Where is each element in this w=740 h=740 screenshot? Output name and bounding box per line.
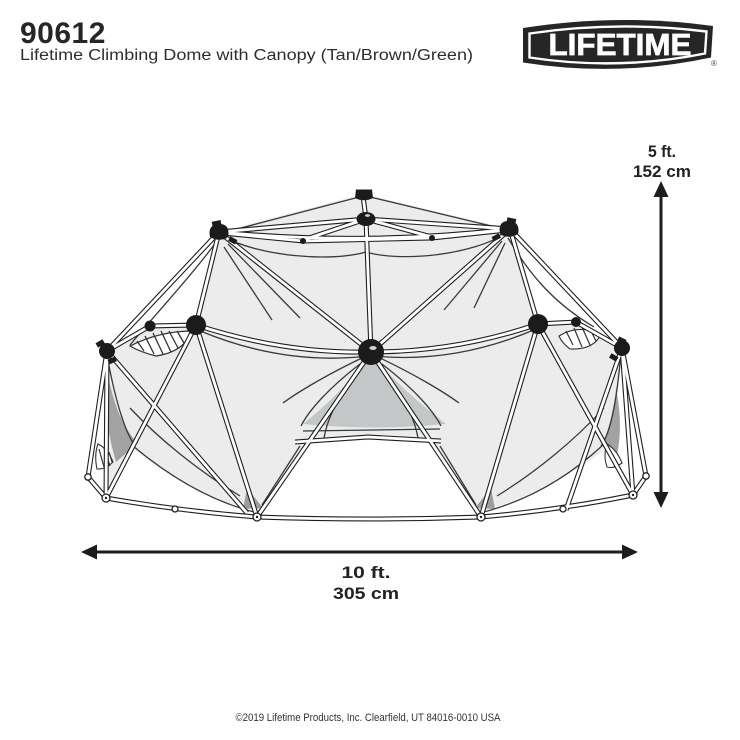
svg-text:5 ft.: 5 ft.: [648, 143, 676, 161]
svg-text:Lifetime Climbing Dome with Ca: Lifetime Climbing Dome with Canopy (Tan/…: [20, 47, 473, 64]
svg-text:LIFETIME: LIFETIME: [549, 27, 692, 62]
svg-text:305 cm: 305 cm: [333, 585, 399, 603]
svg-text:152 cm: 152 cm: [633, 163, 691, 181]
svg-text:10 ft.: 10 ft.: [342, 564, 391, 582]
svg-text:©2019 Lifetime Products, Inc.: ©2019 Lifetime Products, Inc. Clearfield…: [236, 712, 502, 724]
svg-text:90612: 90612: [20, 17, 106, 50]
svg-text:®: ®: [711, 59, 717, 68]
